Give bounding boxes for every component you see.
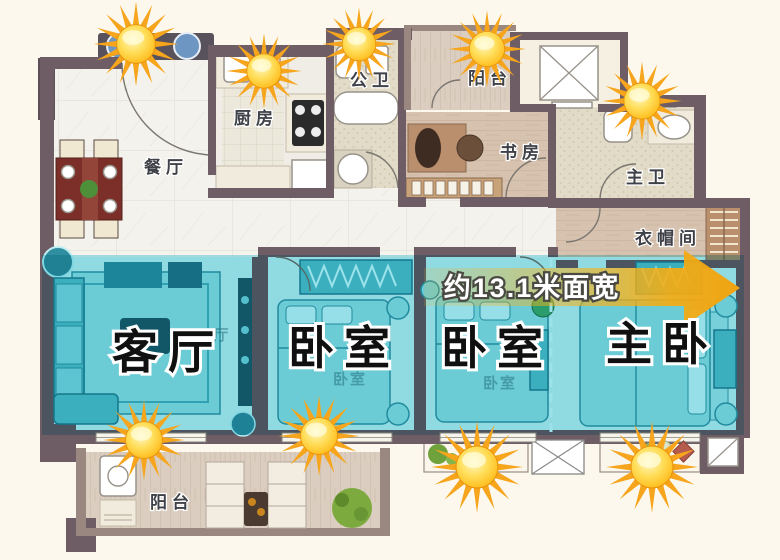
sun-icon (94, 2, 179, 87)
top-balcony-rail (404, 25, 516, 31)
floorplan-canvas: 约13.1米面宽 餐厅 厨房 公卫 阳台 书房 主卫 衣帽间 阳台 厅 卧室 卧… (0, 0, 780, 560)
label-kitchen: 厨房 (234, 108, 278, 128)
sun-icon (104, 400, 185, 481)
lounge-chair (206, 462, 244, 528)
label-guest-bath: 公卫 (350, 71, 394, 90)
balcony-plant (332, 488, 372, 528)
table-plant (80, 180, 98, 198)
sun-icon (279, 396, 360, 477)
bathtub (334, 92, 398, 124)
porcelain-vase (174, 33, 200, 59)
balcony-table (244, 492, 268, 526)
vanity-sink (658, 115, 690, 139)
round-basin (338, 154, 368, 184)
label-living: 客厅 (112, 326, 224, 378)
sun-icon (322, 7, 396, 81)
sun-icon (431, 421, 523, 513)
label-master-bedroom: 主卧 (606, 318, 718, 370)
floorplan-svg: 约13.1米面宽 餐厅 厨房 公卫 阳台 书房 主卫 衣帽间 阳台 厅 卧室 卧… (0, 0, 780, 560)
elevator-shaft (540, 46, 598, 108)
washing-machine (100, 456, 136, 496)
label-study: 书房 (500, 142, 544, 162)
sun-icon (606, 421, 698, 513)
label-master-bath: 主卫 (626, 167, 670, 187)
label-bottom-balcony: 阳台 (150, 492, 194, 512)
desk-chair (457, 135, 483, 161)
label-bedroom-b: 卧室 (441, 322, 553, 374)
sun-icon (448, 10, 525, 87)
sun-icon (602, 61, 681, 140)
lounge-chair (268, 462, 306, 528)
label-cloakroom: 衣帽间 (635, 228, 701, 248)
width-arrow-label: 约13.1米面宽 (444, 272, 621, 303)
label-bedroom-a: 卧室 (288, 322, 400, 374)
label-dining: 餐厅 (144, 157, 188, 177)
sun-icon (226, 33, 301, 108)
label-bedroom-faint: 卧室 (483, 374, 517, 392)
